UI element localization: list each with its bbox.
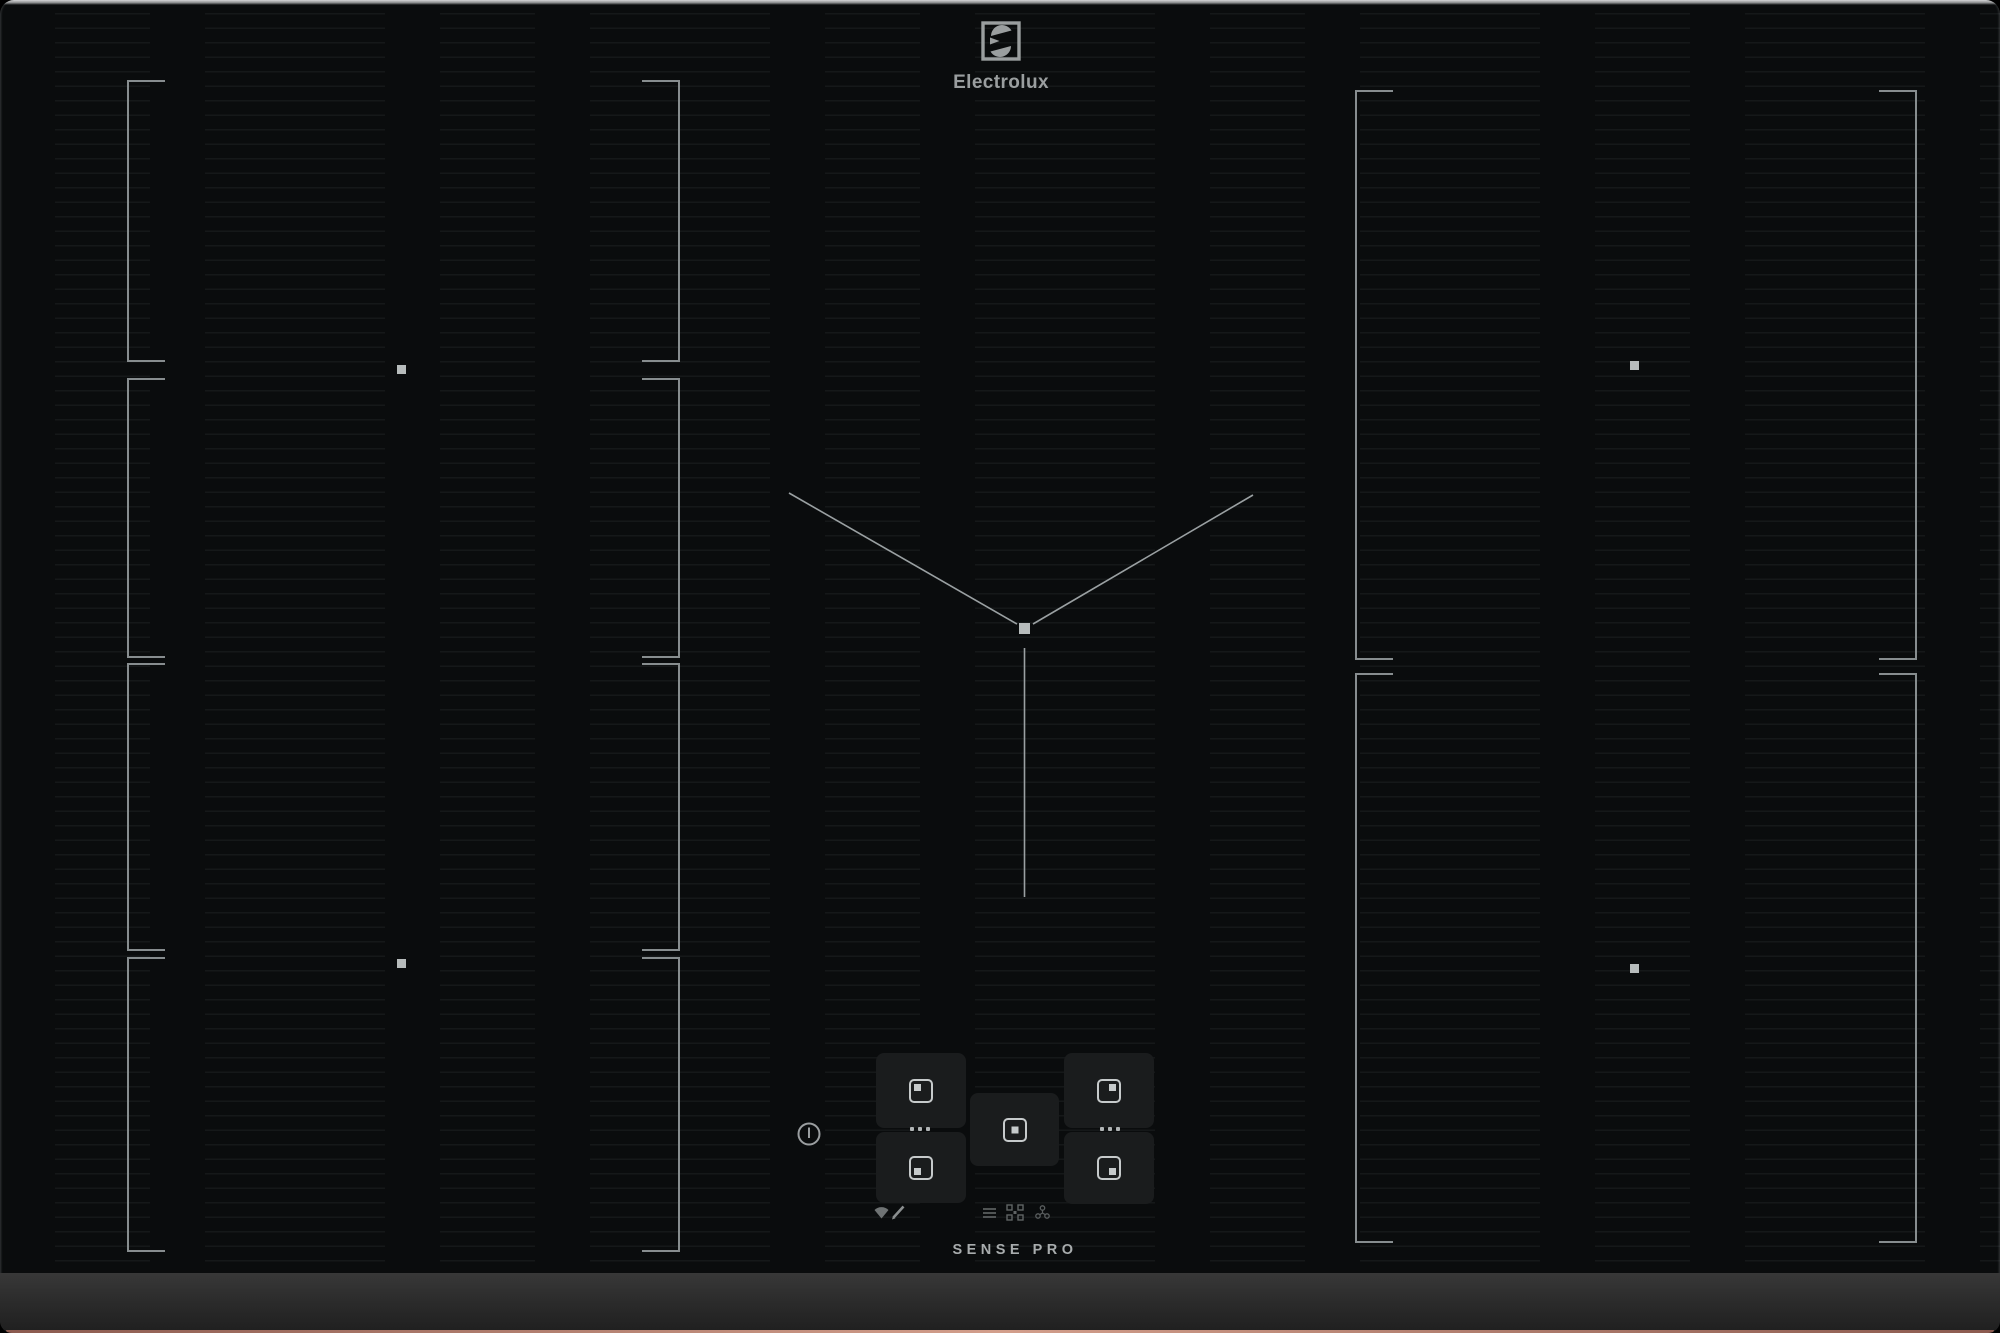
zone-pad-right-top[interactable] (1064, 1053, 1154, 1128)
zone-indicator-bottom-left-icon (909, 1156, 933, 1180)
electrolux-logo-icon (981, 21, 1021, 61)
hob2hood-fan-icon[interactable] (1034, 1204, 1051, 1221)
zone-pad-left-top[interactable] (876, 1053, 966, 1128)
zone-pad-center[interactable] (970, 1093, 1059, 1166)
cooking-zone-left-segment-4 (127, 957, 680, 1252)
zone-indicator-top-right-icon (1097, 1079, 1121, 1103)
cooking-zone-left-segment-2 (127, 378, 680, 658)
left-pad-dots (910, 1127, 930, 1131)
zone-center-marker (397, 365, 406, 374)
sense-pro-label: SENSE PRO (915, 1242, 1115, 1258)
zone-indicator-center-icon (1003, 1118, 1027, 1142)
zone-pad-right-bottom[interactable] (1064, 1132, 1154, 1204)
right-pad-dots (1100, 1127, 1120, 1131)
cooking-zone-right-bottom (1355, 673, 1917, 1243)
cooking-zone-right-top (1355, 90, 1917, 660)
induction-hob: Electrolux (0, 0, 2000, 1333)
menu-icon[interactable] (982, 1207, 997, 1219)
brand-wordmark: Electrolux (911, 72, 1091, 94)
zone-indicator-top-left-icon (909, 1079, 933, 1103)
power-button[interactable] (796, 1121, 822, 1147)
cooking-zone-left-segment-3 (127, 663, 680, 951)
center-zone-v-guide (770, 480, 1270, 910)
pencil-icon[interactable] (891, 1204, 906, 1220)
zone-indicator-bottom-right-icon (1097, 1156, 1121, 1180)
top-edge-highlight (0, 0, 2000, 5)
front-trim-strip (0, 1273, 2000, 1333)
zone-center-marker (1630, 361, 1639, 370)
zone-center-marker (1630, 964, 1639, 973)
bridge-icon[interactable] (1006, 1204, 1024, 1221)
zone-center-marker (397, 959, 406, 968)
zone-pad-left-bottom[interactable] (876, 1132, 966, 1203)
cooking-zone-left-segment-1 (127, 80, 680, 362)
wifi-icon[interactable] (874, 1206, 889, 1219)
